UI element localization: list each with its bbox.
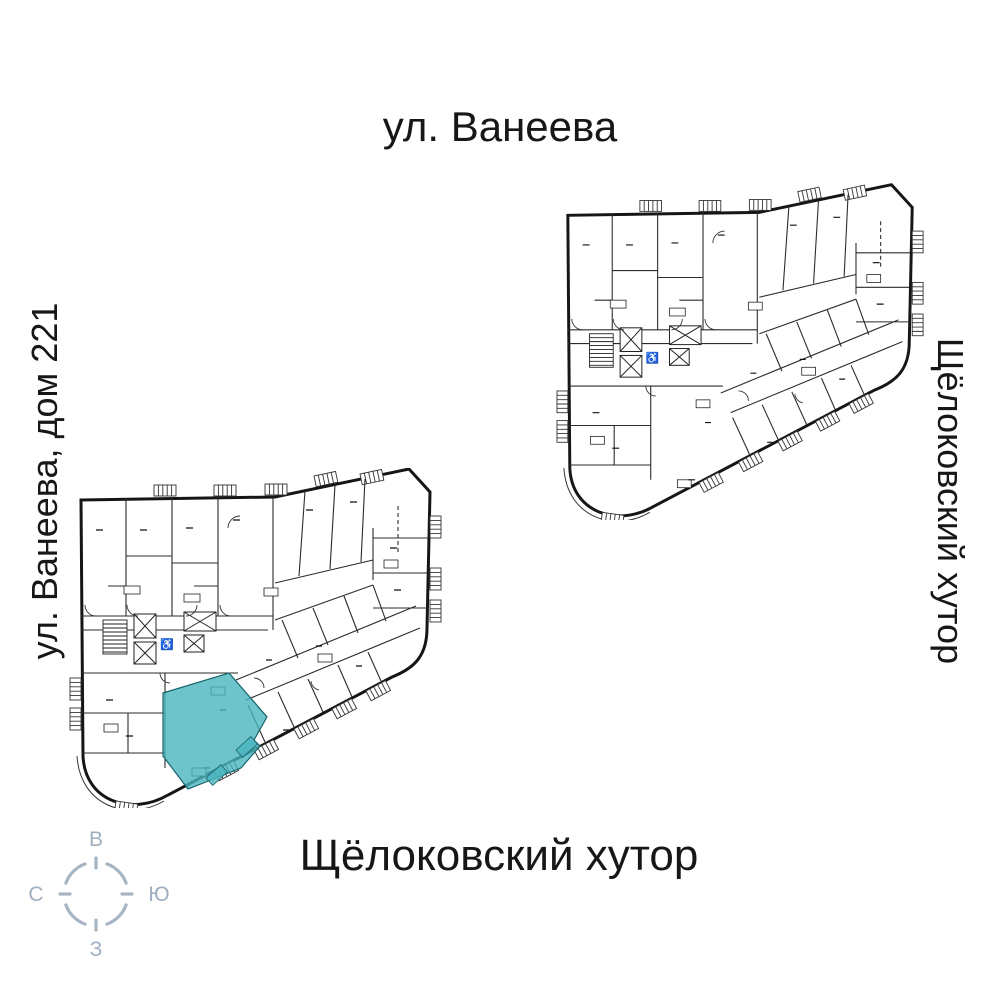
street-label-bottom: Щёлоковский хутор xyxy=(199,831,799,881)
street-label-top: ул. Ванеева xyxy=(200,103,800,151)
compass-letter-top: В xyxy=(89,828,103,851)
floor-plan-lower[interactable] xyxy=(68,468,448,808)
compass-ring xyxy=(60,858,132,930)
floor-plan-drawing xyxy=(557,185,923,520)
street-label-right: Щёлоковский хутор xyxy=(929,301,971,701)
floor-plan-drawing xyxy=(70,469,441,808)
floor-plan-upper[interactable] xyxy=(555,183,930,520)
compass: В Ю З С xyxy=(23,815,173,965)
compass-letter-left: С xyxy=(28,883,43,906)
compass-letter-bottom: З xyxy=(90,938,103,961)
compass-letter-right: Ю xyxy=(148,883,169,906)
street-label-left: ул. Ванеева, дом 221 xyxy=(24,281,66,681)
floorplan-locator-page: ♿ xyxy=(0,0,1000,1000)
